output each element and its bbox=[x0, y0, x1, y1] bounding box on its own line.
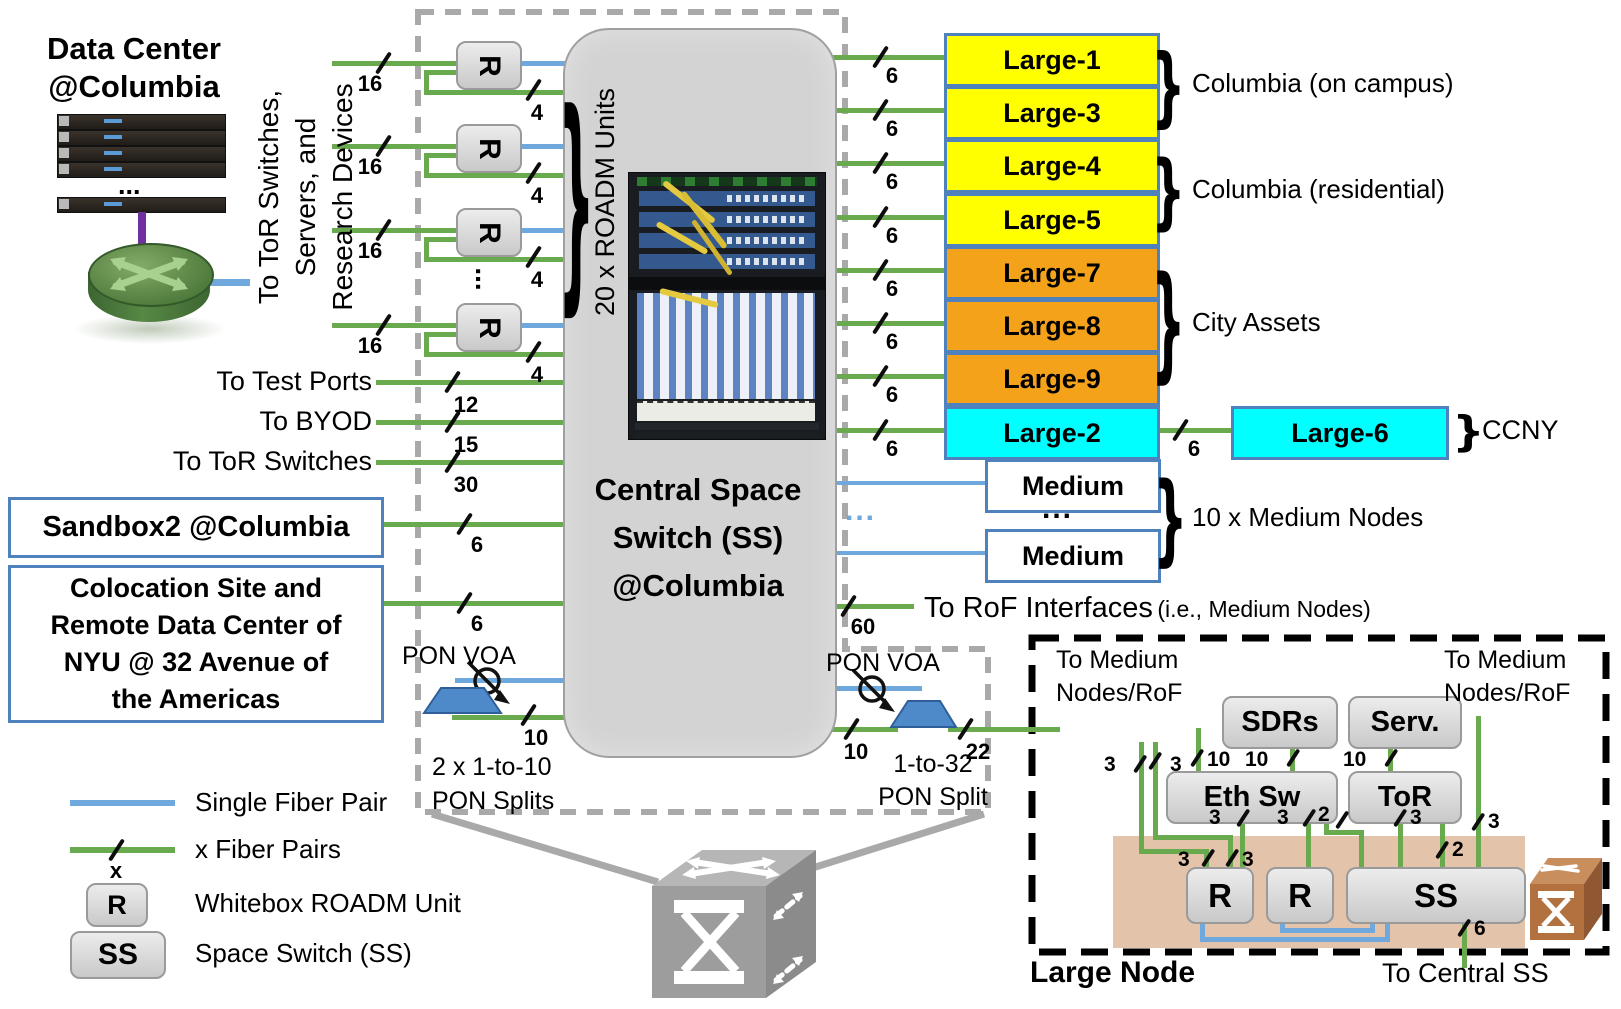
fiber-line bbox=[1306, 819, 1311, 869]
sdrs-label: SDRs bbox=[1241, 706, 1318, 739]
servers-label: Serv. bbox=[1371, 706, 1440, 739]
legend-r-label: Whitebox ROADM Unit bbox=[195, 888, 461, 919]
fiber-count: 10 bbox=[1207, 748, 1230, 772]
large-node-title: Large Node bbox=[1030, 956, 1195, 990]
fiber-count: 4 bbox=[522, 100, 552, 126]
colocation-line: NYU @ 32 Avenue of bbox=[50, 644, 341, 681]
group-label-columbia-campus: Columbia (on campus) bbox=[1192, 68, 1454, 99]
fiber-count: 4 bbox=[522, 267, 552, 293]
fiber-count: 3 bbox=[1104, 753, 1116, 777]
pointer-line-right bbox=[768, 814, 984, 882]
legend-ss-symbol: SS bbox=[98, 938, 138, 972]
large-node-label: Large-5 bbox=[1003, 205, 1101, 236]
inset-space-switch-box: SS bbox=[1346, 867, 1526, 924]
large-node-box: Large-3 bbox=[944, 86, 1160, 140]
sandbox2-label: Sandbox2 @Columbia bbox=[42, 511, 349, 544]
fiber-count: 4 bbox=[522, 183, 552, 209]
fiber-line bbox=[1139, 849, 1209, 854]
fiber-line bbox=[1154, 428, 1231, 433]
large-node-label: Large-4 bbox=[1003, 151, 1101, 182]
roadm-group-label-text: 20 x ROADM Units bbox=[590, 88, 620, 316]
group-brace: } bbox=[1146, 141, 1190, 243]
fiber-line-blue bbox=[1200, 937, 1390, 942]
caption-line: To ToR Switches, bbox=[250, 47, 287, 347]
rof-label-sub: (i.e., Medium Nodes) bbox=[1157, 596, 1370, 622]
roadm-r-label: R bbox=[472, 317, 506, 339]
rack-server bbox=[635, 423, 819, 430]
rof-label: To RoF Interfaces (i.e., Medium Nodes) bbox=[924, 592, 1371, 625]
fiber-count: 4 bbox=[522, 362, 552, 388]
fiber-count: 6 bbox=[880, 169, 904, 195]
port-label-tor-switches: To ToR Switches bbox=[60, 446, 372, 477]
to-medium-nodes-right: To Medium Nodes/RoF bbox=[1444, 644, 1570, 710]
roadm-unit-box: R bbox=[456, 41, 522, 90]
caption-line: To Medium bbox=[1056, 644, 1182, 677]
legend-r-symbol: R bbox=[107, 890, 127, 921]
rack-server bbox=[635, 432, 819, 439]
data-center-title: Data Center @Columbia bbox=[18, 30, 250, 106]
port-label-byod: To BYOD bbox=[60, 406, 372, 437]
large-node-box: Large-8 bbox=[944, 299, 1160, 353]
large-node-label: Large-9 bbox=[1003, 364, 1101, 395]
caption-line: Nodes/RoF bbox=[1444, 677, 1570, 710]
fiber-count: 16 bbox=[350, 154, 390, 180]
port-label-test-ports: To Test Ports bbox=[60, 366, 372, 397]
legend-green-line bbox=[70, 847, 175, 853]
fiber-count: 10 bbox=[516, 725, 556, 751]
inset-roadm-box: R bbox=[1186, 867, 1254, 924]
legend-green-label: x Fiber Pairs bbox=[195, 834, 341, 865]
roadm-r-label: R bbox=[472, 222, 506, 244]
diagram-canvas: Data Center @Columbia ... To ToR Switche… bbox=[0, 0, 1621, 1009]
large-node-box: Large-5 bbox=[944, 193, 1160, 247]
fiber-count: 10 bbox=[1343, 748, 1366, 772]
fiber-count: 16 bbox=[350, 238, 390, 264]
pon-voa-label-left: PON VOA bbox=[402, 642, 516, 671]
large-node-label: Large-7 bbox=[1003, 258, 1101, 289]
colocation-line: the Americas bbox=[50, 681, 341, 718]
legend-blue-line bbox=[70, 800, 175, 806]
legend-x: x bbox=[104, 858, 128, 884]
medium-ellipsis-blue: ... bbox=[845, 494, 876, 528]
fiber-line bbox=[424, 70, 458, 75]
central-switch-title: Central Space Switch (SS) @Columbia bbox=[563, 466, 833, 610]
data-center-title-line2: @Columbia bbox=[18, 68, 250, 106]
fiber-count: 6 bbox=[880, 276, 904, 302]
fiber-count: 3 bbox=[1410, 806, 1422, 830]
caption-line: PON Splits bbox=[432, 784, 554, 818]
fiber-count: 16 bbox=[350, 333, 390, 359]
central-switch-line: Switch (SS) bbox=[563, 514, 833, 562]
fiber-count: 16 bbox=[350, 71, 390, 97]
inset-roadm-label: R bbox=[1288, 877, 1312, 915]
caption-line: 2 x 1-to-10 bbox=[432, 750, 554, 784]
fiber-line bbox=[424, 237, 458, 242]
sdrs-box: SDRs bbox=[1222, 696, 1338, 749]
fiber-line bbox=[424, 153, 458, 158]
legend-ss-box: SS bbox=[70, 931, 166, 979]
group-label-ccny: CCNY bbox=[1482, 415, 1559, 446]
group-label-medium-nodes: 10 x Medium Nodes bbox=[1192, 502, 1423, 533]
pointer-line-left bbox=[432, 814, 658, 882]
fiber-count: 10 bbox=[836, 739, 876, 765]
pon-splitter-icon bbox=[891, 701, 956, 727]
central-switch-line: Central Space bbox=[563, 466, 833, 514]
large-node-label: Large-8 bbox=[1003, 311, 1101, 342]
fiber-count: 6 bbox=[880, 116, 904, 142]
central-switch-line: @Columbia bbox=[563, 562, 833, 610]
large-node-label: Large-1 bbox=[1003, 45, 1101, 76]
fiber-count: 6 bbox=[1474, 917, 1486, 941]
large-node-switch-cube-icon bbox=[1530, 858, 1602, 940]
large6-box: Large-6 bbox=[1231, 406, 1449, 460]
legend-blue-label: Single Fiber Pair bbox=[195, 787, 387, 818]
roadm-unit-box: R bbox=[456, 124, 522, 173]
fiber-count: 15 bbox=[444, 432, 488, 458]
group-brace: } bbox=[1146, 33, 1190, 141]
caption-line: PON Split bbox=[868, 781, 998, 814]
server-unit bbox=[57, 130, 226, 146]
group-label-columbia-residential: Columbia (residential) bbox=[1192, 174, 1445, 205]
fiber-count: 3 bbox=[1277, 806, 1289, 830]
fiber-line bbox=[1324, 830, 1364, 835]
to-medium-nodes-left: To Medium Nodes/RoF bbox=[1056, 644, 1182, 710]
rof-label-main: To RoF Interfaces bbox=[924, 592, 1153, 624]
pon-voa-label-right: PON VOA bbox=[826, 649, 940, 678]
fiber-count: 30 bbox=[444, 472, 488, 498]
large-node-label: Large-6 bbox=[1291, 418, 1389, 449]
inset-roadm-box: R bbox=[1266, 867, 1334, 924]
colocation-box: Colocation Site and Remote Data Center o… bbox=[8, 565, 384, 723]
fiber-count: 6 bbox=[462, 611, 492, 637]
roadm-unit-box: R bbox=[456, 303, 522, 352]
inset-space-switch-label: SS bbox=[1414, 877, 1458, 915]
fiber-count: 6 bbox=[880, 382, 904, 408]
large-node-box: Large-4 bbox=[944, 139, 1160, 193]
server-unit bbox=[57, 197, 226, 213]
fiber-line bbox=[1359, 830, 1364, 871]
fiber-line bbox=[1476, 716, 1481, 871]
fiber-count: 6 bbox=[1182, 436, 1206, 462]
space-switch-cube-icon bbox=[652, 850, 816, 998]
sandbox2-box: Sandbox2 @Columbia bbox=[8, 497, 384, 558]
group-label-city-assets: City Assets bbox=[1192, 307, 1321, 338]
fiber-count: 6 bbox=[880, 223, 904, 249]
fiber-count: 6 bbox=[880, 329, 904, 355]
server-unit bbox=[57, 162, 226, 178]
fiber-count: 10 bbox=[1245, 748, 1268, 772]
large-node-box: Large-7 bbox=[944, 246, 1160, 300]
roadm-r-label: R bbox=[472, 55, 506, 77]
server-unit bbox=[57, 114, 226, 130]
fiber-count: 6 bbox=[880, 63, 904, 89]
tor-box: ToR bbox=[1348, 771, 1462, 824]
patch-panel bbox=[637, 293, 815, 399]
pon-splitter-icon bbox=[424, 688, 501, 713]
medium-node-label: Medium bbox=[1022, 541, 1124, 572]
group-brace: } bbox=[1146, 246, 1190, 402]
fiber-count: 3 bbox=[1488, 810, 1500, 834]
fiber-count: 22 bbox=[958, 739, 998, 765]
roadm-group-label: 20 x ROADM Units bbox=[590, 52, 626, 352]
fiber-count: 6 bbox=[462, 532, 492, 558]
fiber-count: 60 bbox=[843, 614, 883, 640]
rack-photo bbox=[628, 172, 826, 440]
caption-line: Nodes/RoF bbox=[1056, 677, 1182, 710]
pon-splits-caption-left: 2 x 1-to-10 PON Splits bbox=[432, 750, 554, 818]
router-icon bbox=[88, 243, 214, 307]
rack-switch-unit bbox=[639, 191, 815, 206]
legend-r-box: R bbox=[86, 883, 148, 927]
server-unit bbox=[57, 146, 226, 162]
medium-node-box: Medium bbox=[985, 529, 1161, 583]
to-central-ss-label: To Central SS bbox=[1382, 958, 1549, 989]
roadm-ellipsis: ... bbox=[467, 249, 501, 309]
fiber-count: 6 bbox=[880, 436, 904, 462]
fiber-count: 2 bbox=[1318, 803, 1330, 827]
fiber-line bbox=[424, 332, 458, 337]
colocation-line: Colocation Site and bbox=[50, 570, 341, 607]
large-node-box: Large-2 bbox=[944, 406, 1160, 460]
roadm-r-label: R bbox=[472, 138, 506, 160]
medium-ellipsis: ... bbox=[1042, 492, 1073, 526]
fiber-count: 12 bbox=[444, 392, 488, 418]
fiber-line-blue bbox=[1280, 928, 1375, 933]
caption-line: To Medium bbox=[1444, 644, 1570, 677]
fiber-count: 2 bbox=[1452, 838, 1464, 862]
fiber-count: 3 bbox=[1170, 753, 1182, 777]
to-tor-servers-caption: To ToR Switches, Servers, and Research D… bbox=[250, 47, 362, 347]
inset-roadm-label: R bbox=[1208, 877, 1232, 915]
router-uplink-line bbox=[208, 279, 250, 286]
large-node-label: Large-2 bbox=[1003, 418, 1101, 449]
rack-shelf bbox=[629, 277, 825, 290]
group-brace: } bbox=[1148, 458, 1192, 582]
fiber-line bbox=[1398, 819, 1403, 869]
large-node-box: Large-1 bbox=[944, 33, 1160, 87]
large-node-box: Large-9 bbox=[944, 352, 1160, 406]
fiber-line bbox=[1153, 835, 1233, 840]
fiber-count: 3 bbox=[1209, 806, 1221, 830]
data-center-title-line1: Data Center bbox=[18, 30, 250, 68]
legend-ss-label: Space Switch (SS) bbox=[195, 938, 412, 969]
colocation-line: Remote Data Center of bbox=[50, 607, 341, 644]
fiber-count: 3 bbox=[1242, 848, 1254, 872]
patch-panel-base bbox=[637, 401, 815, 421]
large-node-label: Large-3 bbox=[1003, 98, 1101, 129]
fiber-count: 3 bbox=[1178, 848, 1190, 872]
caption-line: Servers, and bbox=[287, 47, 324, 347]
